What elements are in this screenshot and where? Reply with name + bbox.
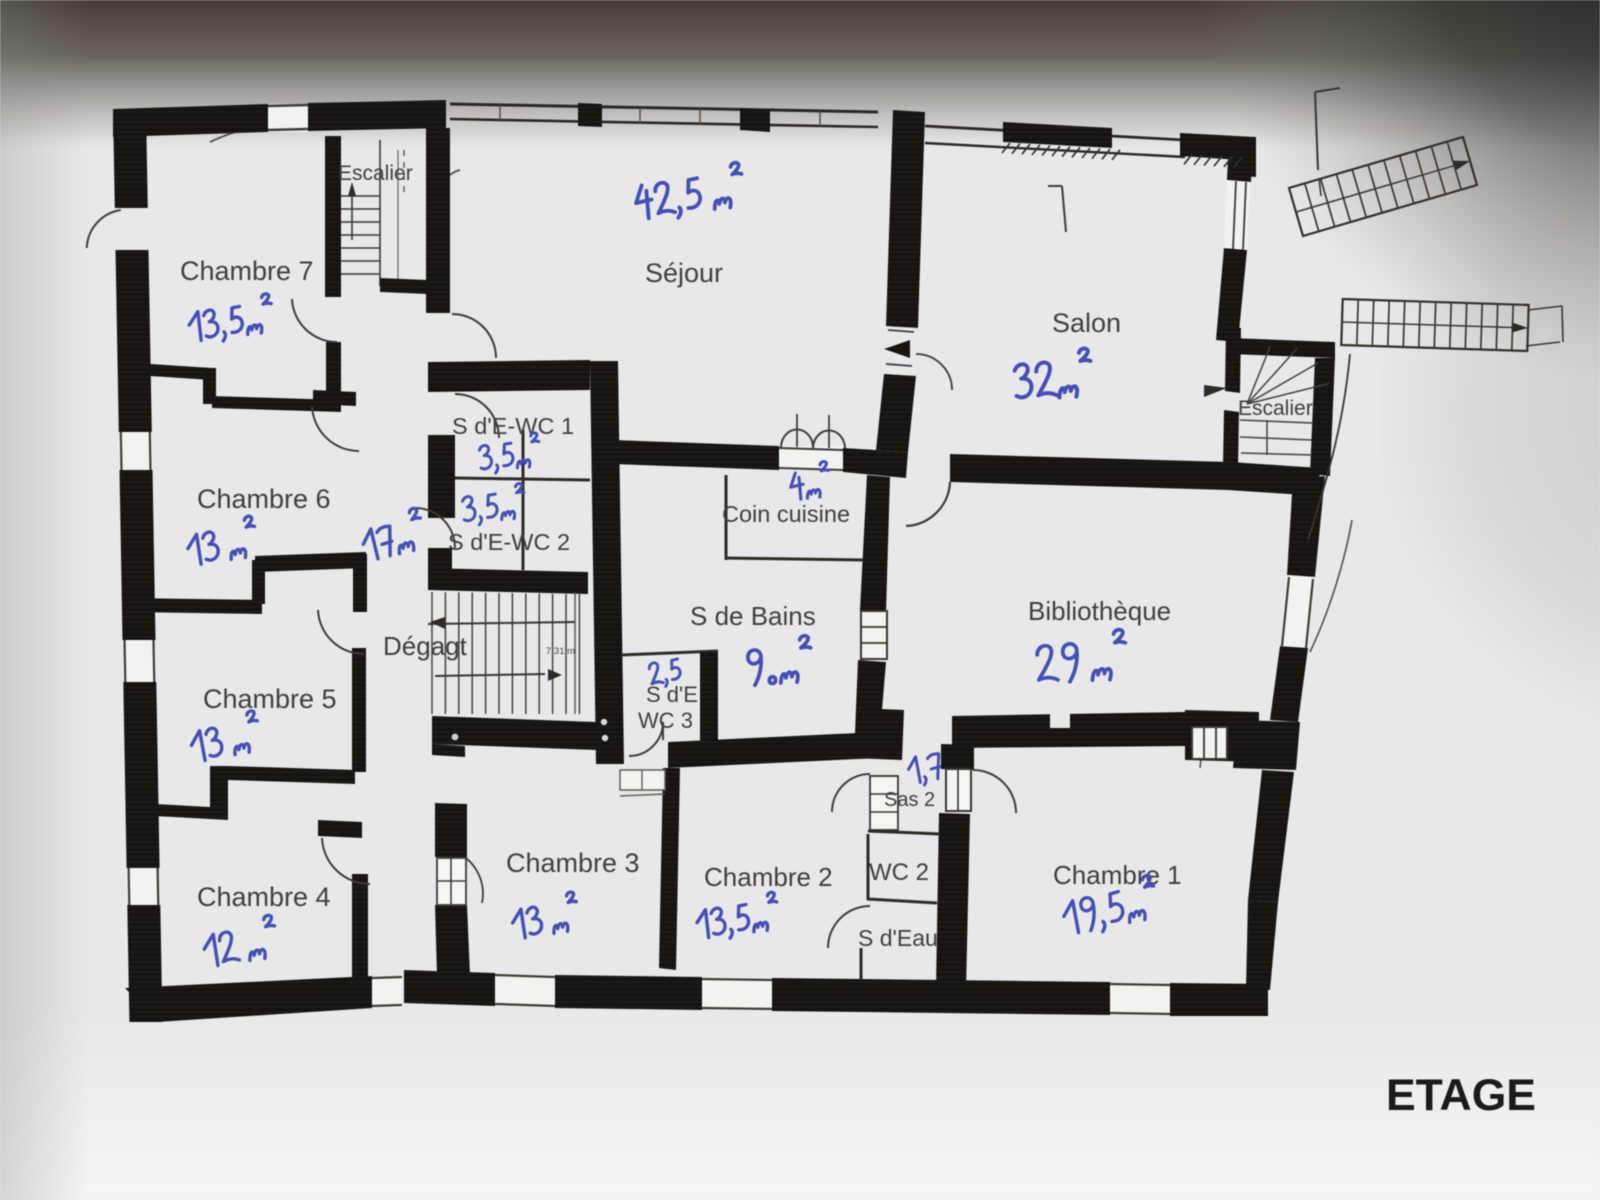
svg-text:S d'E-WC 2: S d'E-WC 2 [448,529,570,555]
svg-text:Salon: Salon [1052,308,1121,338]
svg-text:Bibliothèque: Bibliothèque [1028,596,1171,626]
svg-text:S d'Eau: S d'Eau [858,925,938,951]
svg-text:Séjour: Séjour [645,258,723,288]
svg-text:WC 3: WC 3 [638,708,693,733]
svg-text:Chambre 6: Chambre 6 [197,484,331,514]
svg-text:ETAGE: ETAGE [1386,1071,1536,1120]
svg-text:Sas 2: Sas 2 [884,789,935,811]
svg-text:Chambre 3: Chambre 3 [506,848,640,878]
svg-text:S d'E-WC 1: S d'E-WC 1 [452,413,574,439]
svg-text:Chambre 4: Chambre 4 [197,882,331,912]
svg-text:S d'E: S d'E [646,682,698,707]
svg-text:Dégagt: Dégagt [383,631,468,661]
svg-text:Chambre 1: Chambre 1 [1053,860,1182,890]
svg-text:Chambre 5: Chambre 5 [203,684,337,714]
svg-text:WC 2: WC 2 [869,859,929,886]
svg-text:7,31 m: 7,31 m [546,646,575,657]
svg-text:S de Bains: S de Bains [690,601,816,631]
svg-text:Escalier: Escalier [338,162,413,185]
svg-text:Chambre 2: Chambre 2 [704,862,833,892]
svg-text:Coin cuisine: Coin cuisine [722,501,850,527]
svg-text:Chambre 7: Chambre 7 [180,256,314,286]
